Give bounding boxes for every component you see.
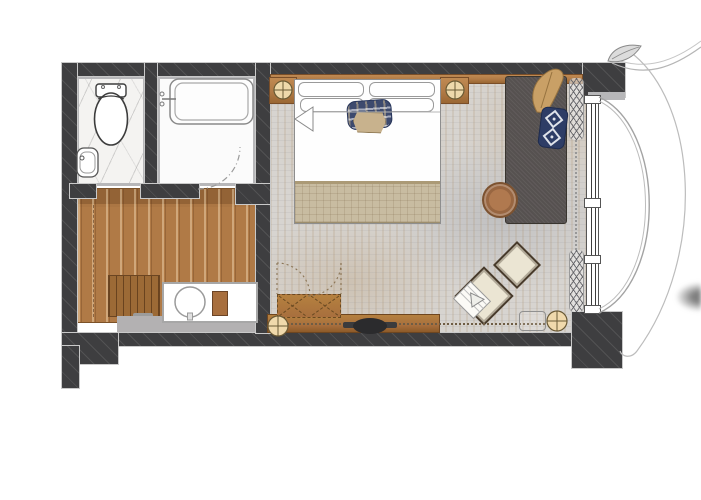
floor-lamp-left xyxy=(268,316,288,336)
hand-basin xyxy=(77,148,98,177)
vanity-basin xyxy=(175,287,205,320)
ikat-pillow xyxy=(538,107,569,150)
floor-lamp-right xyxy=(547,311,567,331)
tub-door-swing xyxy=(198,147,240,189)
floor-plan-canvas xyxy=(0,0,701,500)
table-lamp-right xyxy=(446,81,464,99)
wardrobe-door-swing xyxy=(277,263,341,296)
tv xyxy=(343,318,397,334)
balcony-arc xyxy=(599,97,649,313)
duvet-fold xyxy=(295,107,313,131)
throw-blanket xyxy=(533,69,563,113)
toilet xyxy=(95,84,128,145)
wardrobe-x-marks xyxy=(279,296,339,316)
linework-overlay xyxy=(0,0,701,500)
leaf-ornament xyxy=(608,45,641,62)
bathtub xyxy=(160,79,253,124)
folded-towel xyxy=(454,282,491,319)
facade-curve xyxy=(612,41,701,356)
table-lamp-left xyxy=(274,81,292,99)
